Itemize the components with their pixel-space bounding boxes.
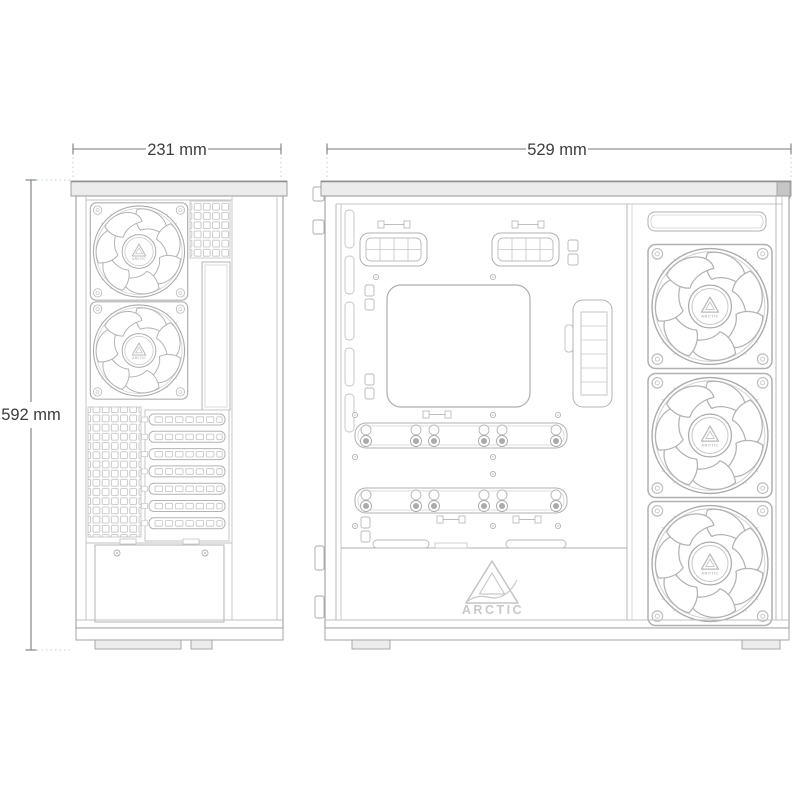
drive-rail-top [355, 423, 567, 448]
rear-foot-right [191, 640, 212, 649]
side-fan-top [648, 245, 774, 371]
rear-top-mesh [190, 201, 230, 258]
rear-psu-bay [95, 545, 224, 622]
cable-grommet-right [492, 233, 559, 266]
rear-io-panel [202, 262, 230, 410]
technical-drawing: ARCTIC 231 mm 529 mm [0, 0, 800, 800]
side-top-cap [321, 181, 791, 196]
rear-fan-top [90, 203, 189, 302]
side-fan-bottom [648, 502, 774, 628]
dimension-label-side-width: 529 mm [527, 141, 587, 159]
rear-expansion-slots [142, 410, 230, 541]
dimension-label-height: 592 mm [1, 406, 61, 424]
drawing-canvas: ARCTIC 231 mm 529 mm [0, 0, 800, 800]
rear-foot-left [95, 640, 181, 649]
cpu-cutout [387, 285, 530, 407]
drive-rail-bottom [355, 488, 567, 513]
side-rear-edge-slots [345, 210, 354, 432]
side-hinge-tabs [313, 187, 324, 618]
side-foot-left [352, 640, 390, 649]
cable-grommet-left [360, 233, 427, 266]
rear-fan-bottom [90, 302, 189, 401]
rear-base [76, 628, 283, 640]
rear-view [71, 181, 287, 649]
dimension-label-rear-width: 231 mm [147, 141, 207, 159]
side-foot-right [742, 640, 780, 649]
side-base [325, 628, 789, 640]
side-fan-middle [648, 374, 774, 500]
side-view: ARCTIC [313, 181, 791, 649]
rear-top-cap [71, 181, 287, 196]
rear-side-mesh [88, 407, 141, 537]
arctic-logo-text: ARCTIC [462, 603, 524, 617]
